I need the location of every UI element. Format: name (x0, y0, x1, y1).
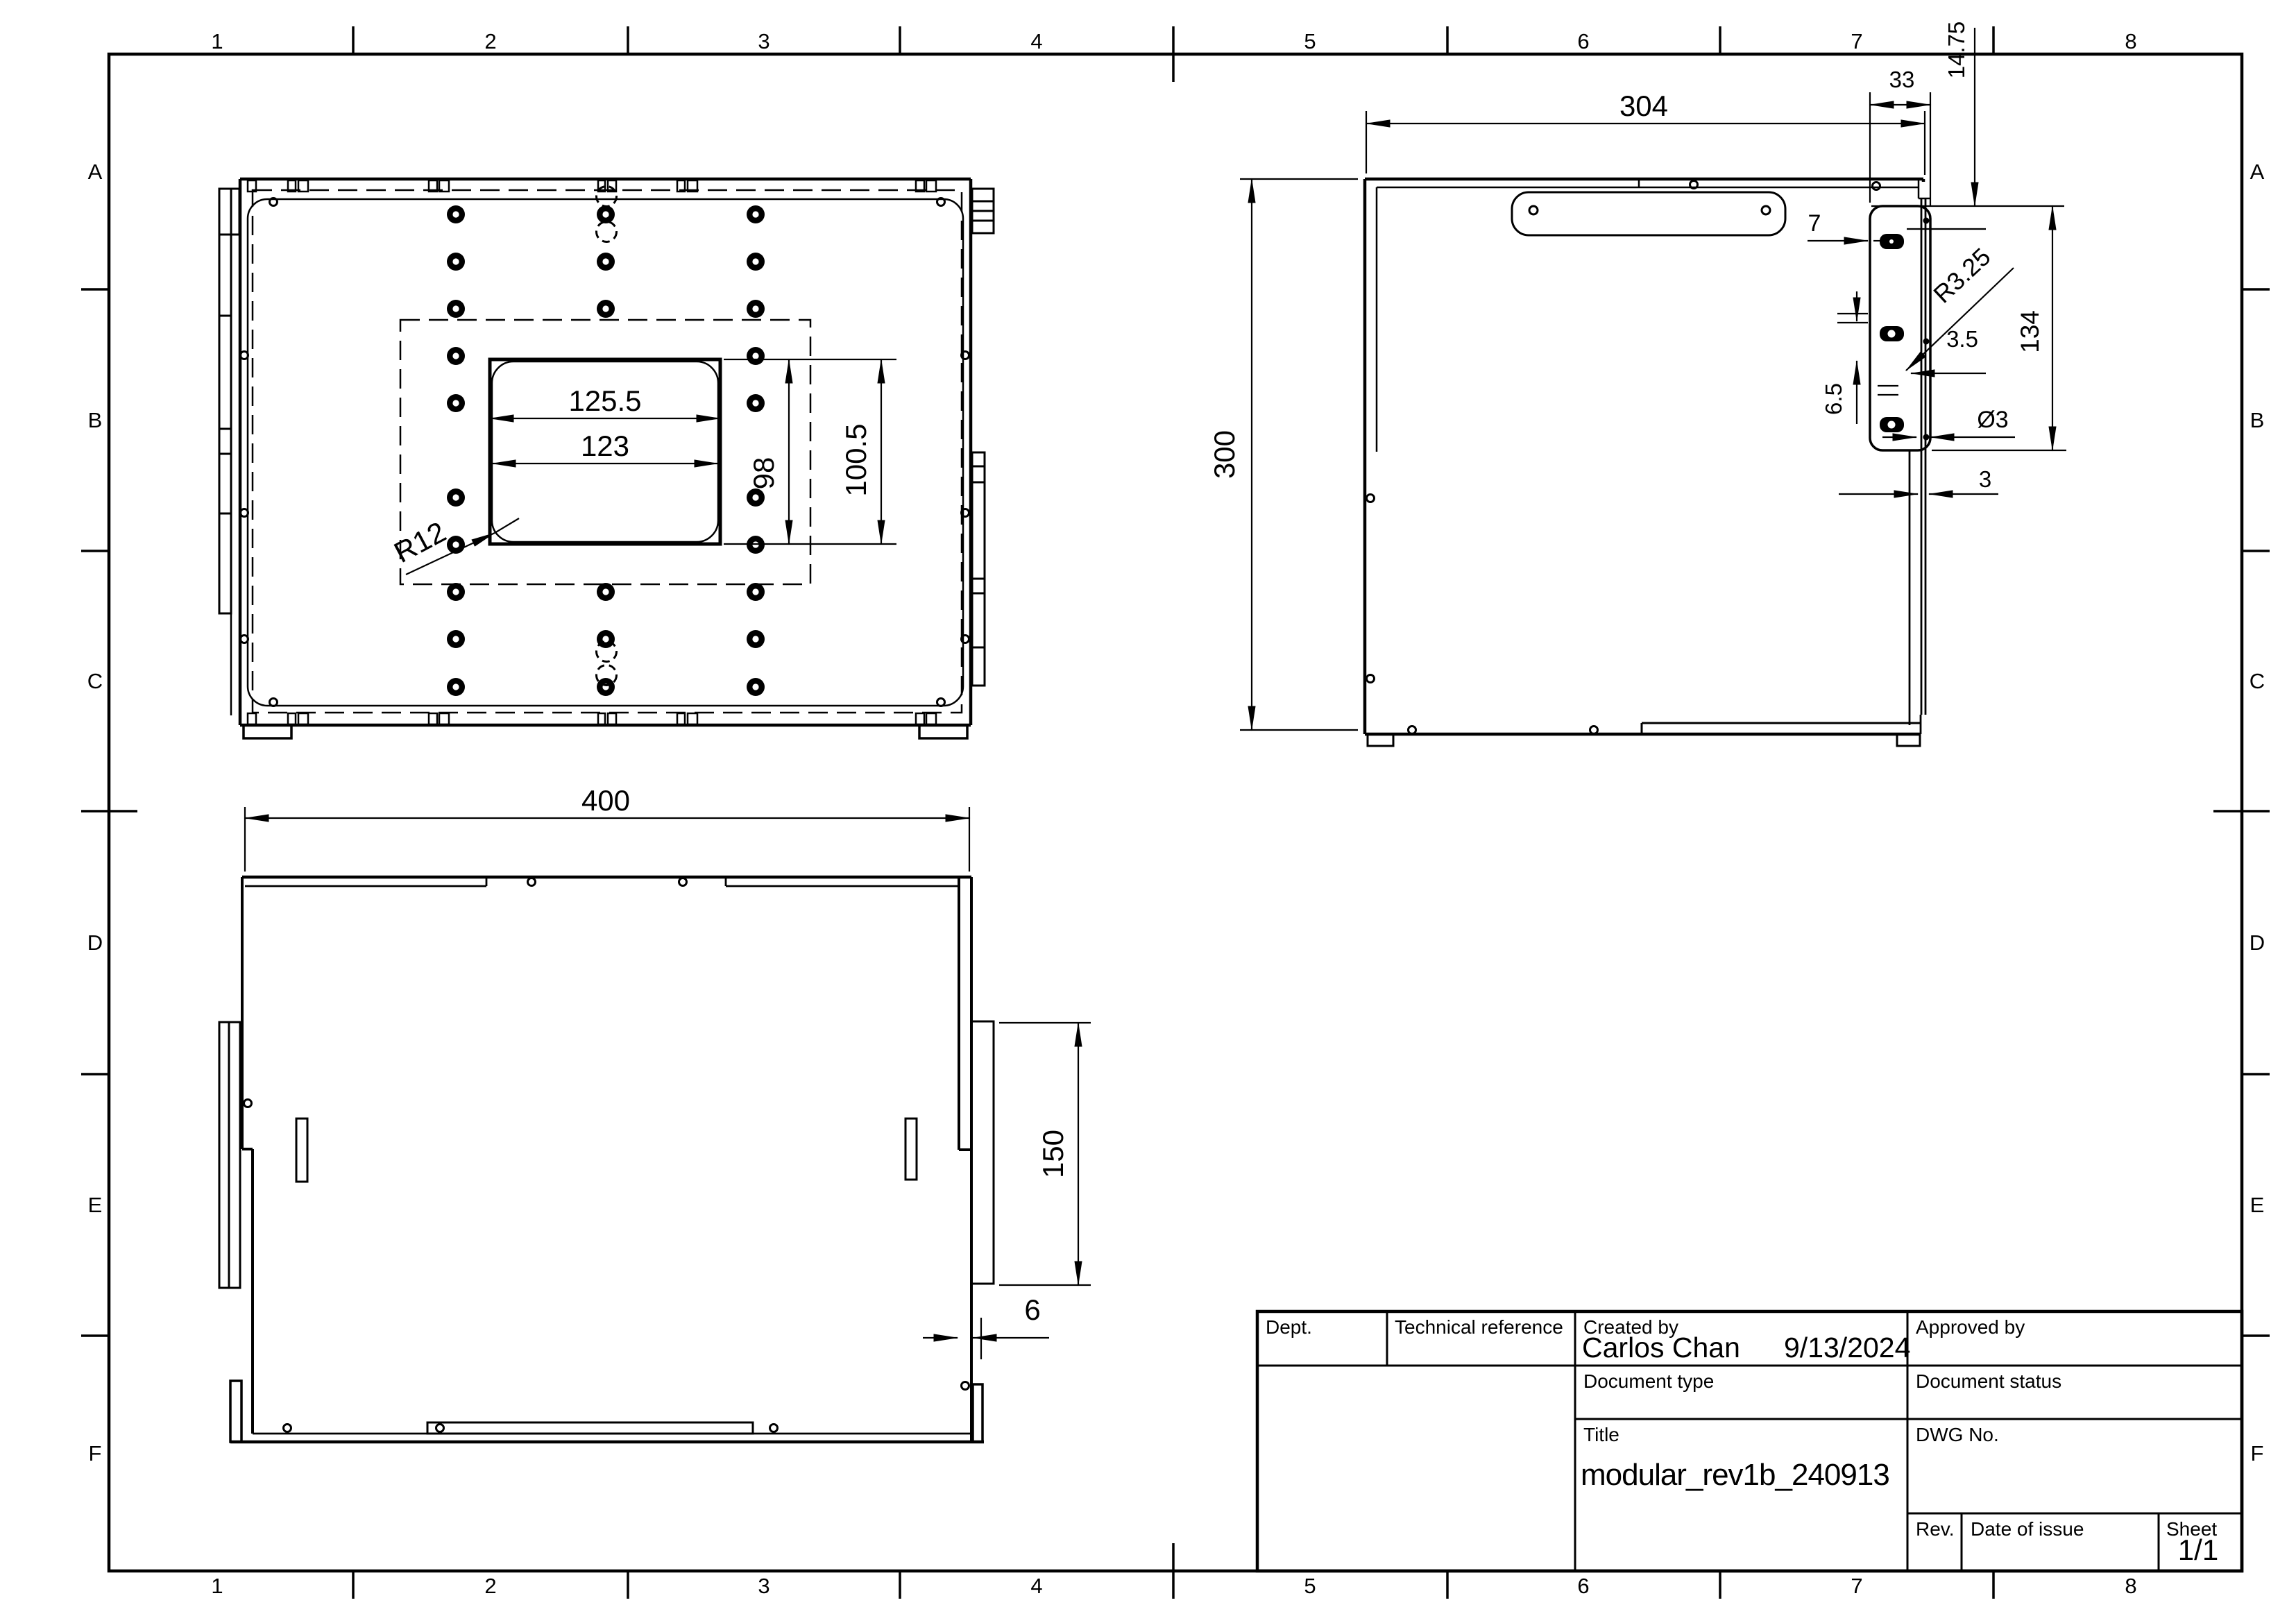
svg-text:6.5: 6.5 (1821, 383, 1846, 415)
svg-text:4: 4 (1030, 29, 1042, 53)
svg-text:123: 123 (581, 430, 629, 462)
svg-text:Document type: Document type (1583, 1370, 1714, 1392)
svg-text:400: 400 (581, 784, 630, 817)
svg-text:3: 3 (758, 1574, 769, 1598)
svg-text:4: 4 (1030, 1574, 1042, 1598)
svg-text:F: F (89, 1441, 102, 1465)
svg-text:1/1: 1/1 (2178, 1533, 2218, 1566)
svg-text:304: 304 (1619, 90, 1668, 122)
svg-text:3: 3 (1979, 466, 1991, 492)
svg-text:Title: Title (1583, 1424, 1619, 1445)
svg-text:E: E (2250, 1193, 2265, 1217)
svg-text:modular_rev1b_240913: modular_rev1b_240913 (1581, 1458, 1889, 1492)
svg-text:A: A (88, 160, 103, 184)
svg-text:8: 8 (2125, 1574, 2136, 1598)
svg-text:8: 8 (2125, 29, 2136, 53)
svg-text:100.5: 100.5 (840, 423, 872, 496)
svg-text:Rev.: Rev. (1916, 1518, 1955, 1540)
svg-text:F: F (2251, 1441, 2264, 1465)
svg-text:134: 134 (2016, 310, 2044, 353)
svg-text:Approved by: Approved by (1916, 1316, 2025, 1338)
svg-text:1: 1 (211, 1574, 223, 1598)
svg-text:Carlos Chan: Carlos Chan (1582, 1332, 1740, 1363)
svg-text:Document status: Document status (1916, 1370, 2061, 1392)
svg-text:5: 5 (1304, 1574, 1316, 1598)
svg-text:B: B (88, 408, 103, 432)
svg-text:98: 98 (747, 457, 780, 490)
svg-text:1: 1 (211, 29, 223, 53)
svg-text:Date of issue: Date of issue (1971, 1518, 2084, 1540)
svg-text:D: D (87, 931, 103, 955)
svg-text:2: 2 (484, 29, 496, 53)
svg-text:E: E (88, 1193, 103, 1217)
svg-text:7: 7 (1851, 29, 1862, 53)
svg-text:A: A (2250, 160, 2265, 184)
svg-text:7: 7 (1808, 210, 1821, 237)
svg-text:Technical reference: Technical reference (1395, 1316, 1563, 1338)
svg-text:Dept.: Dept. (1266, 1316, 1312, 1338)
svg-text:3.5: 3.5 (1946, 326, 1978, 352)
svg-text:D: D (2250, 931, 2265, 955)
svg-text:3: 3 (758, 29, 769, 53)
svg-text:DWG No.: DWG No. (1916, 1424, 1999, 1445)
svg-text:125.5: 125.5 (568, 384, 641, 417)
svg-text:B: B (2250, 408, 2265, 432)
svg-text:150: 150 (1037, 1130, 1069, 1178)
svg-text:6: 6 (1577, 1574, 1589, 1598)
svg-text:6: 6 (1024, 1293, 1040, 1326)
svg-text:6: 6 (1577, 29, 1589, 53)
svg-text:Ø3: Ø3 (1977, 407, 2008, 433)
svg-text:33: 33 (1889, 67, 1915, 92)
svg-text:5: 5 (1304, 29, 1316, 53)
svg-text:14.75: 14.75 (1944, 22, 1969, 79)
svg-text:9/13/2024: 9/13/2024 (1784, 1332, 1910, 1363)
svg-text:C: C (87, 669, 103, 693)
svg-text:2: 2 (484, 1574, 496, 1598)
svg-text:300: 300 (1208, 430, 1241, 479)
svg-text:C: C (2250, 669, 2265, 693)
svg-text:7: 7 (1851, 1574, 1862, 1598)
